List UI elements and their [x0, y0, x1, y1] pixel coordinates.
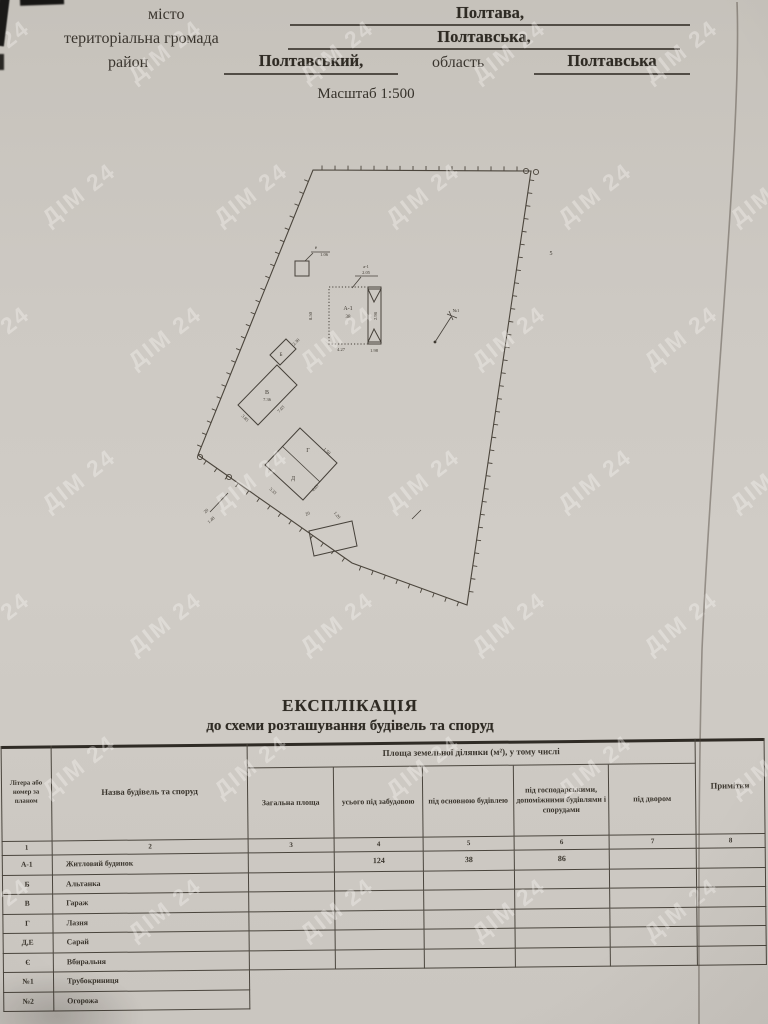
row-value [424, 890, 515, 910]
column-number: 6 [515, 836, 610, 851]
row-name: Гараж [53, 892, 249, 914]
row-value [611, 927, 698, 947]
watermark-text: ДІМ 24 [725, 157, 768, 231]
plan-annotation: 1.48 [206, 515, 216, 524]
underline [224, 73, 398, 75]
building-outline [368, 329, 381, 342]
watermark-text: ДІМ 24 [0, 300, 35, 374]
plan-annotation: 3.33 [268, 486, 278, 495]
row-value [335, 891, 424, 911]
row-value [249, 853, 335, 873]
plan-annotation: 4.27 [337, 347, 346, 352]
explication-subtitle: до схеми розташування будівель та споруд [0, 718, 700, 735]
header-subcol: Загальна площа [248, 768, 335, 840]
column-number: 8 [697, 834, 766, 849]
plot-boundary [198, 170, 531, 605]
field-hromada-label: територіальна громада [64, 30, 219, 48]
header-subcol: під господарськими, допоміжними будівлям… [514, 765, 610, 837]
underline [290, 24, 690, 26]
plan-annotation: 2.98 [373, 311, 378, 320]
row-value [610, 907, 697, 927]
row-value [336, 930, 425, 950]
plan-annotation: 1.50 [322, 446, 332, 456]
row-name: Альтанка [53, 873, 249, 895]
underline [288, 48, 680, 50]
underline [534, 73, 690, 75]
row-name: Сарай [54, 931, 250, 953]
field-city-value: Полтава, [290, 3, 690, 23]
row-value [697, 848, 766, 868]
column-number: 7 [610, 835, 697, 850]
row-letter: Б [2, 875, 53, 895]
watermark-text: ДІМ 24 [639, 300, 723, 374]
plan-annotation: Г [306, 448, 310, 454]
plan-annotation: 20 [305, 510, 312, 516]
row-value [698, 926, 767, 946]
plan-annotation: 8.50 [308, 311, 313, 320]
plan-annotation: №1 [453, 308, 460, 313]
plan-annotation: А-1 [343, 306, 352, 312]
plan-annotation: 4.03 [310, 483, 320, 493]
row-value [515, 889, 610, 909]
row-value [424, 870, 515, 890]
scan-smudge [0, 968, 142, 1024]
row-value [425, 929, 516, 949]
field-city-label: місто [148, 6, 184, 24]
row-value [698, 945, 767, 965]
header-subcol: під двором [609, 764, 697, 836]
plan-annotation: В [265, 390, 269, 396]
plan-annotation: Д [291, 476, 295, 482]
plan-annotation: 2.30 [291, 337, 301, 347]
row-value [610, 868, 697, 888]
row-value [697, 867, 766, 887]
plan-annotation: Б [280, 353, 283, 358]
row-value [425, 948, 516, 968]
row-value [611, 946, 698, 966]
watermark-text: ДІМ 24 [0, 586, 35, 660]
row-value [336, 949, 425, 969]
plan-annotation: 1.98 [370, 348, 379, 353]
plan-line [305, 253, 313, 261]
scan-corner-artifact [0, 0, 10, 46]
row-value [335, 871, 424, 891]
scan-corner-artifact [20, 0, 64, 6]
map-scale-label: Масштаб 1:500 [0, 86, 732, 103]
plan-line [282, 446, 320, 482]
row-letter: Г [2, 914, 53, 934]
boundary-survey-ticks [197, 166, 534, 607]
row-letter: В [2, 894, 53, 914]
row-letter: А-1 [2, 855, 53, 875]
row-value [610, 888, 697, 908]
header-letter: Літера або номер за планом [1, 745, 53, 842]
row-value [335, 910, 424, 930]
field-raion-label: район [108, 54, 148, 72]
building-outline [368, 289, 381, 302]
header-subcol: під основною будівлею [423, 766, 515, 838]
header-subcol: усього під забудовою [334, 767, 424, 839]
plan-line [352, 277, 361, 288]
watermark-text: ДІМ 24 [123, 14, 207, 88]
row-value: 124 [335, 852, 424, 872]
watermark-text: ДІМ 24 [37, 443, 121, 517]
row-value [249, 892, 335, 912]
row-value: 38 [424, 851, 515, 871]
row-letter: Д,Е [3, 933, 54, 953]
plan-annotation: 20 [203, 507, 210, 514]
building-outline [295, 261, 309, 276]
watermark-text: ДІМ 24 [37, 157, 121, 231]
row-value [697, 906, 766, 926]
row-value [249, 911, 335, 931]
plan-annotation: 7.36 [263, 397, 272, 402]
field-hromada-value: Полтавська, [288, 27, 680, 47]
explication-title: ЕКСПЛІКАЦІЯ [0, 696, 700, 716]
plan-annotation: 3.85 [241, 413, 251, 423]
plan-line [412, 510, 421, 519]
column-number: 5 [424, 837, 515, 852]
scanned-document-page: місто Полтава, територіальна громада Пол… [0, 0, 768, 1024]
plan-line [435, 317, 451, 342]
plan-annotation: 1.20 [333, 510, 342, 520]
row-value [516, 947, 611, 967]
row-value [424, 909, 515, 929]
plan-annotation: 1.06 [320, 252, 329, 257]
plan-annotation: 2.05 [362, 270, 371, 275]
row-name: Житловий будинок [53, 853, 249, 875]
row-name: Лазня [53, 912, 249, 934]
plan-line [210, 493, 228, 512]
watermark-text: ДІМ 24 [725, 443, 768, 517]
row-value [250, 931, 336, 951]
boundary-point-circle [533, 169, 538, 174]
scan-corner-artifact [0, 54, 4, 70]
plan-annotation: 5 [550, 251, 553, 257]
plan-annotation: 38 [346, 315, 352, 320]
site-plan: А-1388.504.271.982.98а-12.05е1.06Б2.30В7… [150, 140, 620, 660]
plan-annotation: е [315, 246, 318, 251]
watermark-text: ДІМ 24 [639, 586, 723, 660]
header-notes: Примітки [696, 738, 766, 835]
row-value [250, 950, 336, 970]
field-raion-value: Полтавський, [224, 51, 398, 71]
row-value [249, 872, 335, 892]
plan-annotation: а-1 [363, 264, 369, 269]
row-value [515, 908, 610, 928]
row-value [515, 869, 610, 889]
row-value [697, 887, 766, 907]
column-number: 3 [249, 839, 335, 854]
field-oblast-label: область [432, 54, 484, 72]
row-value: 86 [515, 850, 610, 870]
field-oblast-value: Полтавська [534, 51, 690, 71]
row-value [516, 928, 611, 948]
column-number: 4 [335, 838, 424, 853]
row-value [610, 849, 697, 869]
column-number: 1 [2, 841, 53, 856]
header-name: Назва будівель та споруд [52, 743, 249, 841]
